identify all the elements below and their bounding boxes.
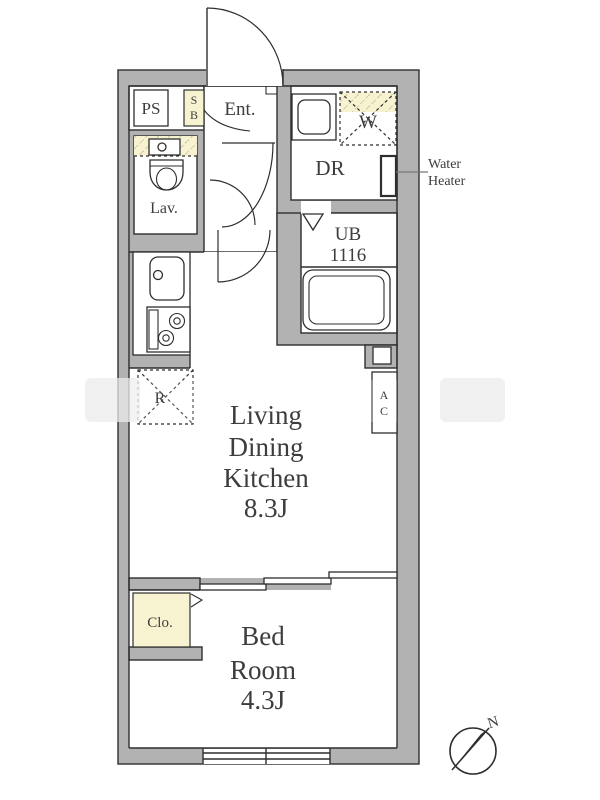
bedroom-size-label: 4.3J — [241, 685, 285, 715]
water-heater-box — [381, 156, 396, 196]
bedroom-window — [203, 748, 330, 764]
toilet-icon — [150, 160, 183, 190]
compass-circle — [450, 728, 496, 774]
faucet-icon — [158, 143, 166, 151]
sink-faucet-icon — [154, 271, 163, 280]
ldk-label-2: Dining — [228, 432, 303, 462]
compass — [450, 728, 496, 774]
floorplan-page: PS S B Ent. DR W Lav. UB 1116 R A C Livi… — [0, 0, 600, 800]
floorplan-canvas: PS S B Ent. DR W Lav. UB 1116 R A C Livi… — [0, 0, 600, 800]
unit-bath-label: UB — [335, 224, 361, 245]
unit-bath-size: 1116 — [330, 245, 367, 266]
stove-icon — [147, 307, 190, 352]
bedroom-label-1: Bed — [241, 621, 285, 651]
lavatory-label: Lav. — [150, 200, 178, 217]
shoe-box-label-1: S — [191, 93, 198, 107]
meter-box — [373, 347, 391, 364]
entrance-label: Ent. — [224, 99, 255, 120]
refrigerator-label: R — [155, 390, 166, 407]
kitchen — [133, 252, 190, 355]
ldk-size-label: 8.3J — [244, 493, 288, 523]
ac-label-1: A — [380, 388, 389, 402]
bedroom-label-2: Room — [230, 655, 296, 685]
water-heater-label-1: Water — [428, 157, 461, 172]
dressing-room-label: DR — [315, 156, 344, 180]
shoe-box-label-2: B — [190, 108, 198, 122]
ldk-label-1: Living — [230, 400, 302, 430]
ldk-label-3: Kitchen — [223, 463, 309, 493]
ac-label-2: C — [380, 404, 388, 418]
water-heater-label-2: Heater — [428, 174, 466, 189]
pipe-shaft-label: PS — [142, 99, 161, 118]
washer-label: W — [359, 112, 377, 133]
washbasin-bowl — [298, 100, 330, 134]
bathtub — [303, 270, 390, 330]
closet-label: Clo. — [147, 615, 172, 631]
